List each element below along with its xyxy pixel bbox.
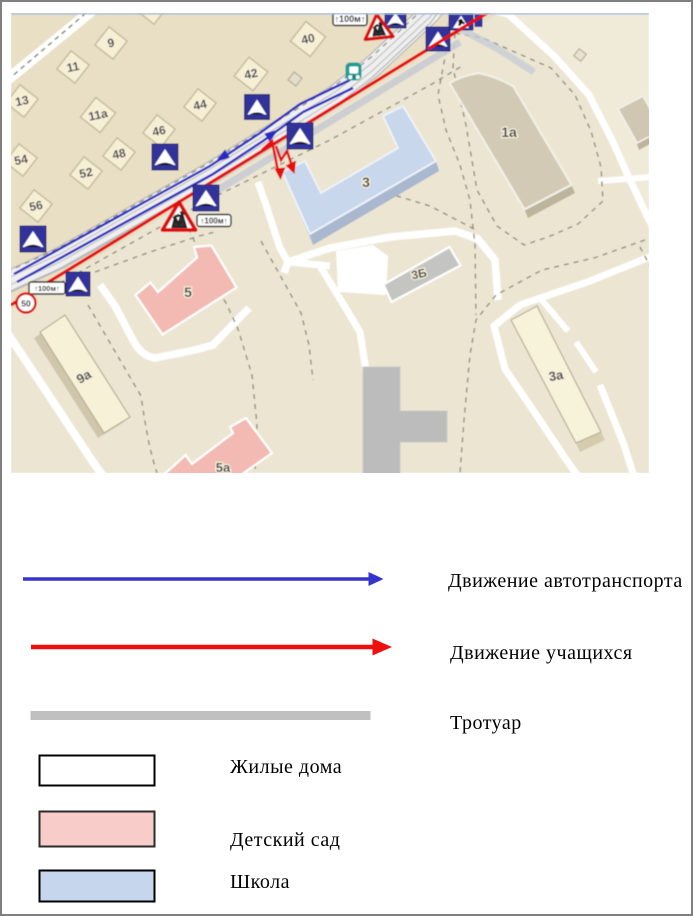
svg-text:↑100м↑: ↑100м↑ xyxy=(200,217,227,226)
svg-text:Детский сад: Детский сад xyxy=(230,829,340,851)
svg-text:50: 50 xyxy=(21,299,31,309)
svg-text:Движение автотранспорта: Движение автотранспорта xyxy=(448,570,683,592)
svg-text:Школа: Школа xyxy=(230,871,290,893)
svg-text:↑100м↑: ↑100м↑ xyxy=(34,284,60,293)
svg-text:Движение учащихся: Движение учащихся xyxy=(450,642,633,664)
svg-text:1a: 1a xyxy=(501,124,517,140)
svg-text:Тротуар: Тротуар xyxy=(450,712,522,734)
svg-text:3: 3 xyxy=(362,174,370,190)
svg-text:5: 5 xyxy=(184,284,192,300)
svg-text:↑100м↑: ↑100м↑ xyxy=(335,14,366,24)
svg-text:Жилые дома: Жилые дома xyxy=(230,756,342,778)
svg-text:5a: 5a xyxy=(216,460,231,475)
